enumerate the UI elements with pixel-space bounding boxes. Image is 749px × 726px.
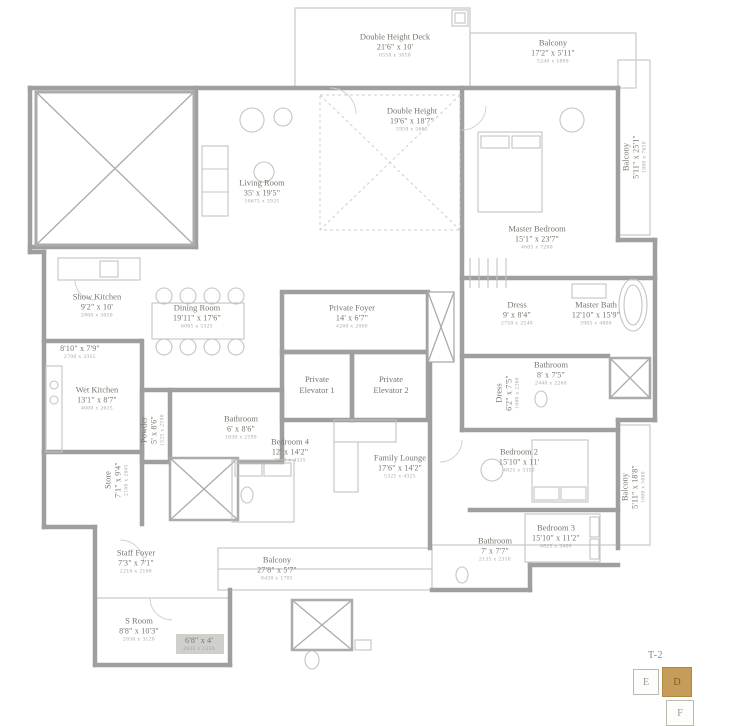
keyplan-cell-F[interactable]: F xyxy=(666,700,694,726)
bedroom-3-bed xyxy=(525,514,600,562)
foyer-shaft xyxy=(428,292,454,362)
family-lounge-sofa xyxy=(334,420,396,492)
keyplan-title: T-2 xyxy=(648,650,663,661)
duct-shaft-right xyxy=(610,358,650,398)
keyplan-cell-E[interactable]: E xyxy=(633,669,659,695)
service-elevator xyxy=(170,458,238,520)
stair-hint xyxy=(470,258,506,288)
floor-plan-page: Double Height Deck21'6" x 10'6550 x 3050… xyxy=(0,0,749,720)
floor-plan-drawing xyxy=(0,0,749,720)
master-bathtub xyxy=(572,279,647,331)
show-kitchen-counter xyxy=(58,258,140,280)
stair-shaft-bottom xyxy=(292,600,352,650)
bedroom-2-bed xyxy=(481,440,588,502)
shaded-store-area xyxy=(176,634,224,654)
void-top-left xyxy=(36,92,194,245)
master-bed xyxy=(478,108,584,212)
bath-fixtures xyxy=(241,391,547,669)
keyplan-cell-D[interactable]: D xyxy=(662,667,692,697)
living-room-sofa xyxy=(202,108,292,216)
wet-kitchen-counter xyxy=(46,366,62,452)
dining-table xyxy=(152,288,244,355)
double-height-marking xyxy=(320,95,460,230)
